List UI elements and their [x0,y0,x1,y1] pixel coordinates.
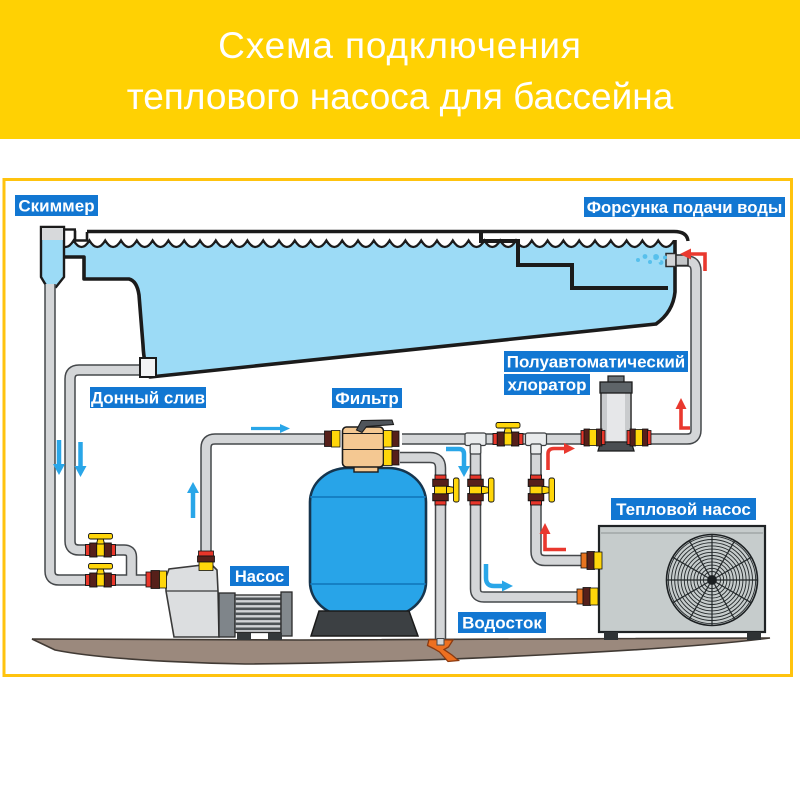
svg-text:Форсунка подачи воды: Форсунка подачи воды [587,198,783,217]
svg-text:Фильтр: Фильтр [335,389,398,408]
svg-text:Тепловой насос: Тепловой насос [616,500,751,519]
svg-text:теплового насоса для бассейна: теплового насоса для бассейна [127,76,674,117]
svg-text:Схема подключения: Схема подключения [218,25,582,66]
svg-text:Полуавтоматический: Полуавтоматический [507,353,685,372]
svg-text:Скиммер: Скиммер [18,197,94,216]
svg-text:Донный слив: Донный слив [91,389,205,408]
svg-text:Водосток: Водосток [462,614,542,633]
svg-text:хлоратор: хлоратор [507,376,586,395]
svg-text:Насос: Насос [235,568,284,586]
